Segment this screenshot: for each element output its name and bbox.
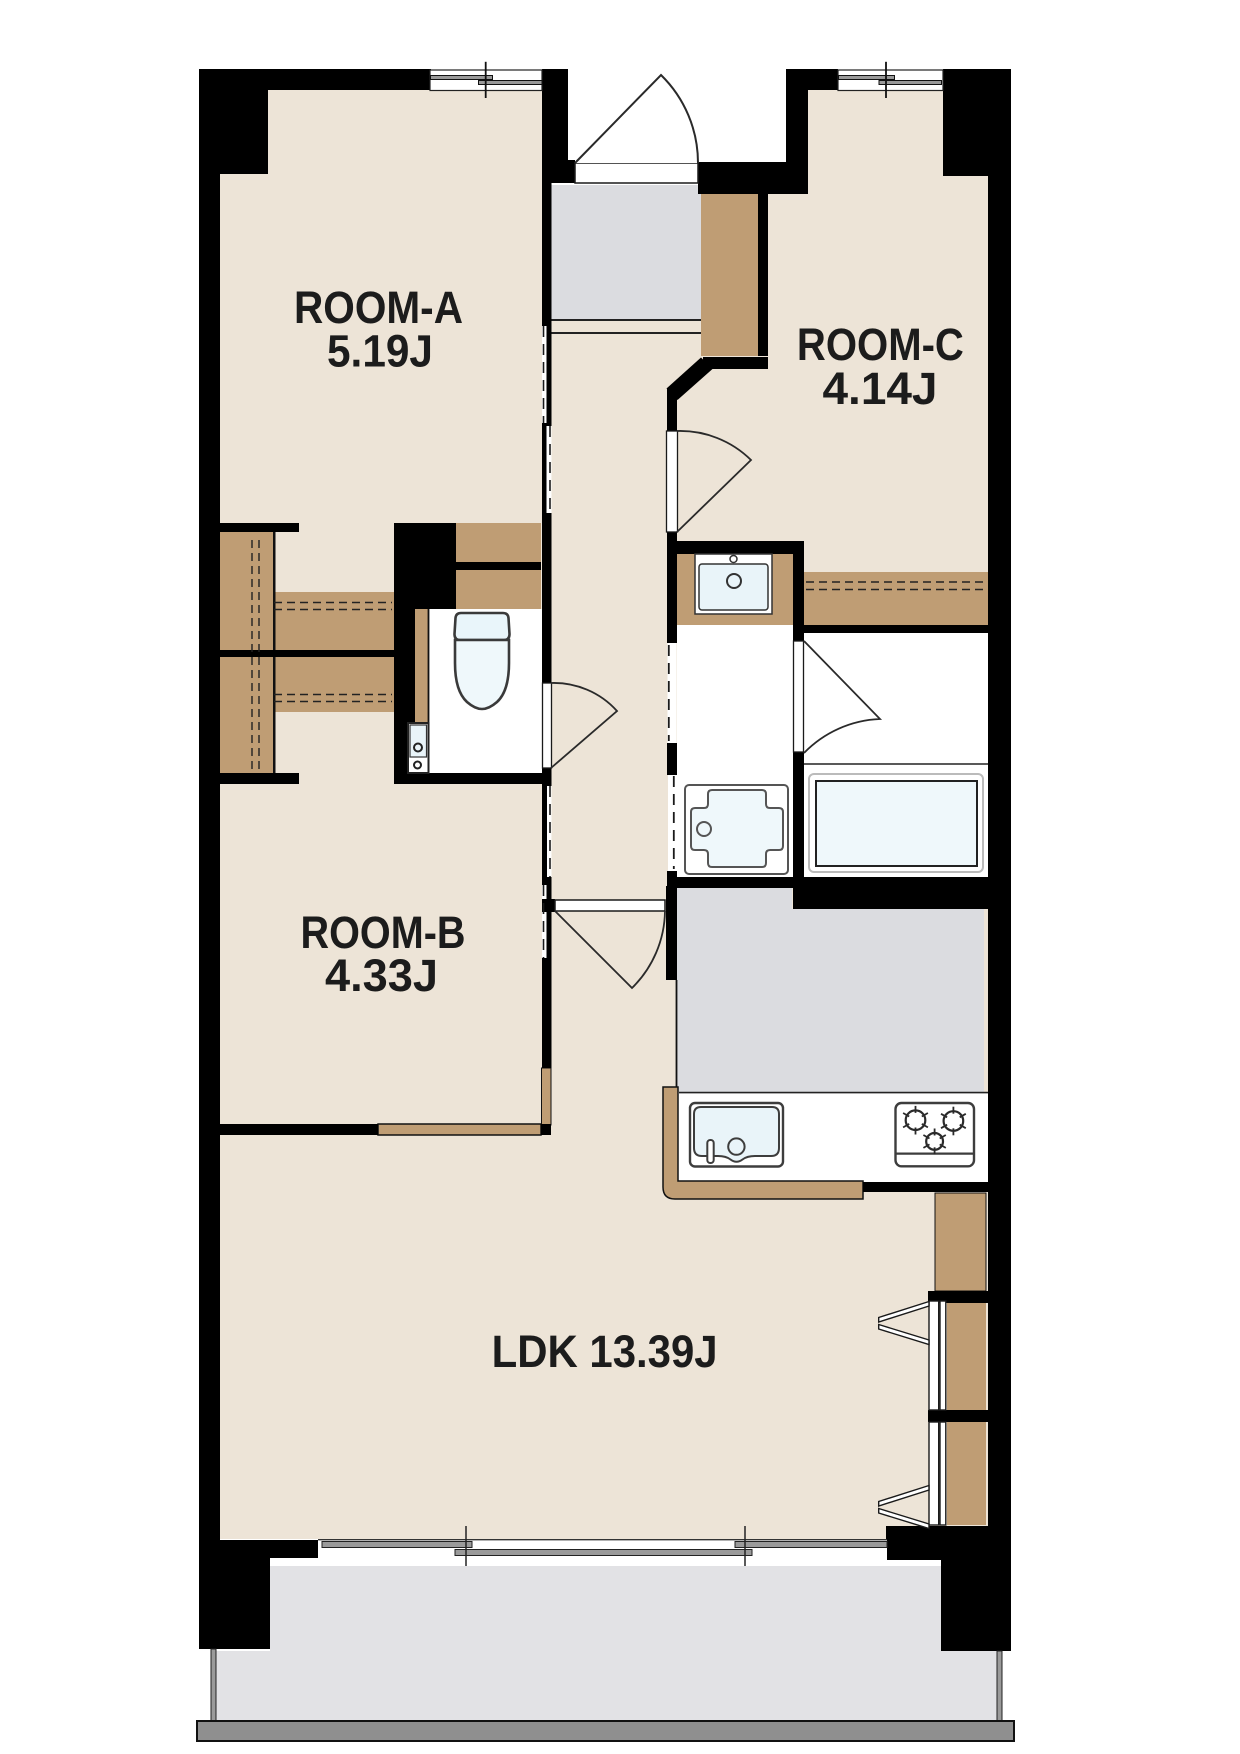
svg-text:5.19J: 5.19J (327, 326, 433, 377)
svg-text:4.33J: 4.33J (325, 950, 438, 1001)
svg-text:4.14J: 4.14J (823, 363, 938, 414)
svg-text:LDK 13.39J: LDK 13.39J (492, 1326, 718, 1377)
